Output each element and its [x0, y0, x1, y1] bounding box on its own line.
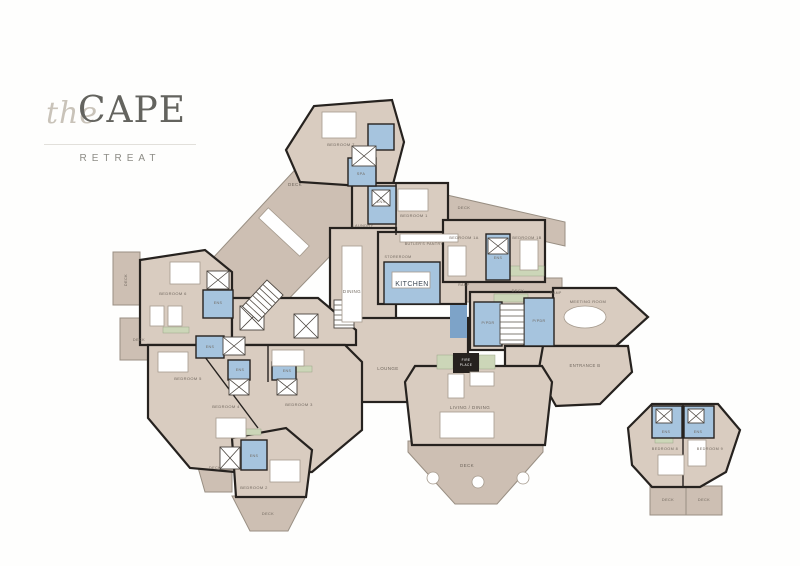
room-label-deck-living: DECK — [460, 463, 474, 468]
room-label-ens-bedroom-1: ENS — [377, 200, 386, 204]
room-label-entrance-b: ENTRANCE B — [570, 363, 601, 368]
bed-bedroom7 — [322, 112, 356, 138]
deck-table-b — [472, 476, 484, 488]
living-sofa-a — [448, 374, 464, 398]
deck-table-a — [427, 472, 439, 484]
green-fireplace-right — [479, 355, 495, 369]
green-detached-strip — [655, 438, 673, 443]
floorplan-svg: DECKBEDROOM 7SPAENSLAUNDRYBEDROOM 1BUTLE… — [0, 0, 800, 566]
bed-bedroom6 — [170, 262, 200, 284]
room-label-spa: SPA — [357, 172, 366, 176]
room-label-pdr-east: P/PDR — [533, 319, 546, 323]
room-label-kitchen: KITCHEN — [395, 281, 429, 288]
living-sofa-b — [470, 372, 494, 386]
room-label-deck-diagonal: DECK — [288, 182, 302, 187]
room-label-deck-bedroom-2: DECK — [262, 512, 274, 516]
bed-bedroom1b — [520, 240, 538, 270]
room-label-deck-bedroom-9: DECK — [698, 498, 710, 502]
green-fireplace-left — [437, 355, 453, 369]
room-label-bedroom-1: BEDROOM 1 — [400, 213, 428, 218]
room-entrance-b — [538, 346, 632, 406]
room-label-bedroom-4: BEDROOM 4 — [212, 404, 240, 409]
room-label-bedroom-7: BEDROOM 7 — [327, 142, 355, 147]
room-label-ens-bedroom-9: ENS — [694, 430, 703, 434]
bed-bedroom3 — [272, 350, 304, 366]
room-label-ens-bedroom-2: ENS — [250, 454, 259, 458]
room-label-bedroom-9: BEDROOM 9 — [697, 447, 723, 451]
room-label-laundry: LAUNDRY — [353, 224, 374, 228]
room-label-meeting-room: MEETING ROOM — [570, 299, 607, 304]
dining-table — [342, 246, 362, 322]
room-label-lounge: LOUNGE — [377, 366, 398, 371]
green-bedroom6-strip — [163, 327, 189, 333]
room-label-dining: DINING — [343, 289, 361, 294]
room-label-bedroom-2: BEDROOM 2 — [240, 485, 268, 490]
bed-bedroom2 — [270, 460, 300, 482]
bed-bedroom1 — [398, 189, 428, 211]
single-bed-b — [168, 306, 182, 326]
room-label-deck-bedroom-8: DECK — [662, 498, 674, 502]
room-label-ens-bedroom-4: ENS — [236, 368, 245, 372]
living-table — [440, 412, 494, 438]
room-label-deck-west-upper: DECK — [124, 274, 128, 286]
room-label-deck-east: DECK — [512, 288, 525, 293]
room-label-bedroom-6: BEDROOM 6 — [159, 291, 187, 296]
lounge-games-mat — [450, 305, 467, 338]
room-label-deck-cluster: DECK — [209, 466, 221, 470]
room-label-ens-bedroom-6: ENS — [214, 301, 223, 305]
deck-table-c — [517, 472, 529, 484]
bed-bedroom8 — [658, 455, 684, 475]
stairs-central — [500, 304, 524, 344]
room-label-bedroom-1b: BEDROOM 1B — [512, 236, 541, 240]
room-label-fireplace-line-1: FIRE — [462, 358, 471, 362]
meeting-table — [564, 306, 606, 328]
bed-bedroom9 — [688, 440, 706, 466]
room-label-bedroom-5: BEDROOM 5 — [174, 376, 202, 381]
single-bed-a — [150, 306, 164, 326]
room-label-ens-bedroom-8: ENS — [662, 430, 671, 434]
room-label-ramp-west: RAMP — [458, 283, 470, 287]
room-label-ens-bedroom-3: ENS — [283, 369, 292, 373]
room-label-ens-bedroom-5: ENS — [206, 345, 215, 349]
green-stair-strip — [494, 294, 528, 302]
room-label-ens-bedroom-1ab: ENS — [494, 256, 503, 260]
room-label-deck-north: DECK — [458, 205, 471, 210]
room-label-pdr-west: P/PDR — [482, 321, 495, 325]
bed-bedroom5 — [158, 352, 188, 372]
green-bedroom3-strip — [294, 366, 312, 372]
room-label-storeroom: STOREROOM — [384, 255, 411, 259]
room-label-fireplace-line-2: PLACE — [460, 363, 472, 367]
bed-bedroom4 — [216, 418, 246, 438]
room-label-deck-west-lower: DECK — [133, 338, 145, 342]
room-label-bedroom-1a: BEDROOM 1A — [449, 236, 478, 240]
room-label-bedroom-3: BEDROOM 3 — [285, 402, 313, 407]
bed-bedroom1a — [448, 246, 466, 276]
room-label-ramp-east: RAMP — [550, 291, 562, 295]
room-label-living-dining: LIVING / DINING — [450, 405, 490, 410]
room-label-butlers-pantry: BUTLER'S PANTRY — [405, 242, 444, 246]
room-label-bedroom-8: BEDROOM 8 — [652, 447, 678, 451]
